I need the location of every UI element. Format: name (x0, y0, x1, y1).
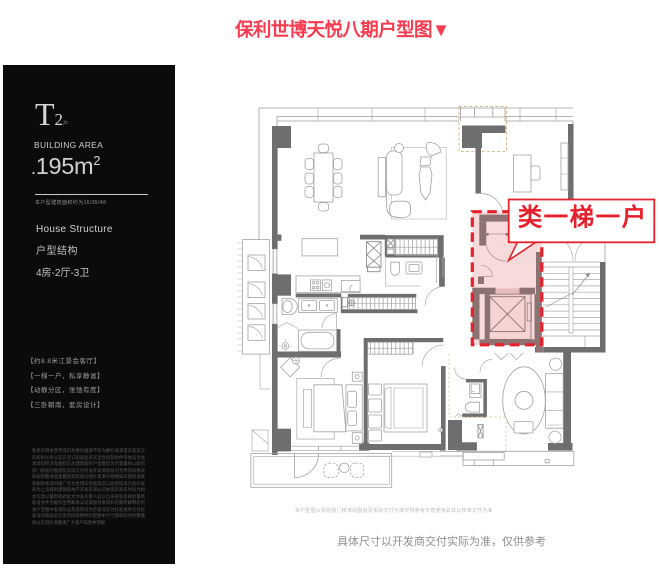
svg-text:类一梯一户: 类一梯一户 (518, 203, 648, 232)
